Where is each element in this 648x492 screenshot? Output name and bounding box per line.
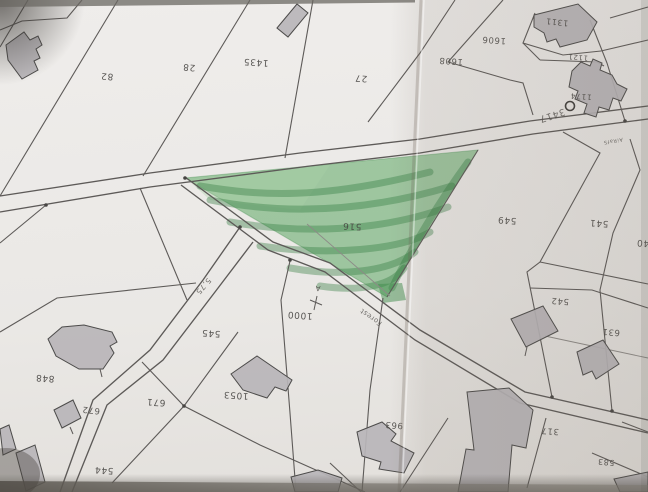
map-canvas: A 82281435271311160816061121117451654954… (0, 0, 648, 492)
arrow-a-marker: A (315, 284, 321, 292)
parcel-label-545: 545 (201, 327, 221, 338)
parcel-line-19 (0, 283, 196, 332)
building-5 (54, 400, 81, 428)
fold-shadow (390, 0, 648, 492)
parcel-label-1053: 1053 (223, 389, 249, 401)
tick-mark-2 (100, 369, 102, 377)
boundary-dot-3 (182, 404, 186, 408)
parcel-label-82: 82 (100, 70, 113, 81)
parcel-label-544: 544 (94, 464, 114, 475)
parcel-label-672: 672 (82, 404, 101, 416)
right-edge-shade (641, 0, 648, 492)
cadastral-map-photo: A 82281435271311160816061121117451654954… (0, 0, 648, 492)
boundary-dot-2 (288, 258, 292, 262)
tick-mark-3 (70, 427, 73, 434)
boundary-dot-0 (44, 203, 48, 207)
boundary-dot-1 (238, 225, 242, 229)
parcel-label-671: 671 (146, 396, 166, 407)
parcel-label-848: 848 (35, 372, 55, 383)
parcel-label-516: 516 (342, 220, 361, 231)
paper-top-edge (0, 0, 415, 7)
building-1 (277, 4, 308, 37)
parcel-label-1435: 1435 (243, 56, 269, 68)
parcel-label-1000: 1000 (287, 309, 313, 321)
parcel-line-23 (112, 332, 238, 483)
boundary-dot-6 (183, 176, 187, 180)
corner-shadow (0, 0, 85, 85)
building-4 (48, 325, 117, 369)
parcel-label-27: 27 (354, 72, 367, 83)
parcel-line-20 (140, 188, 187, 300)
parcel-line-3 (143, 0, 250, 176)
parcel-label-28: 28 (182, 61, 195, 72)
